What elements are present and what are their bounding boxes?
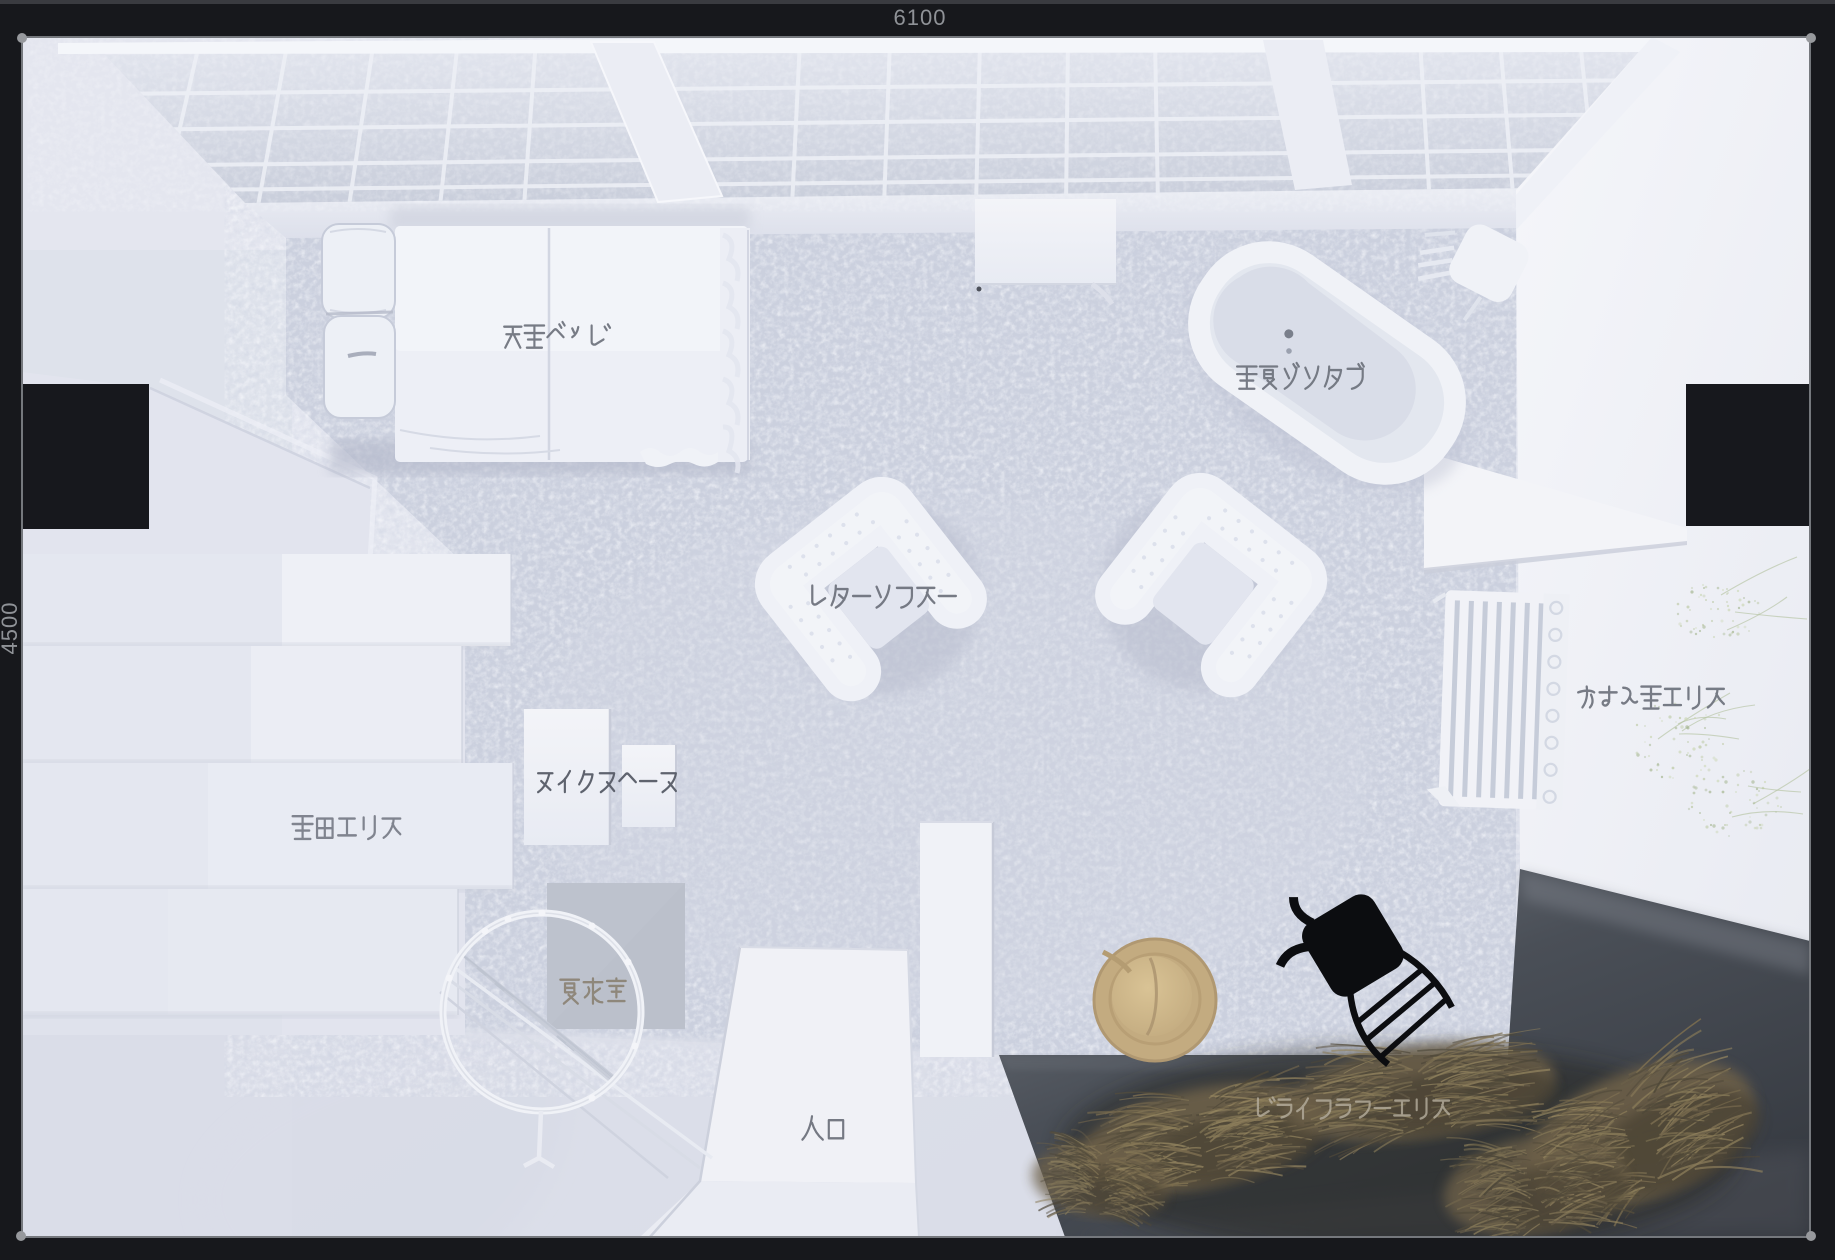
svg-text:6100: 6100 <box>894 5 947 30</box>
svg-text:4500: 4500 <box>0 602 22 655</box>
